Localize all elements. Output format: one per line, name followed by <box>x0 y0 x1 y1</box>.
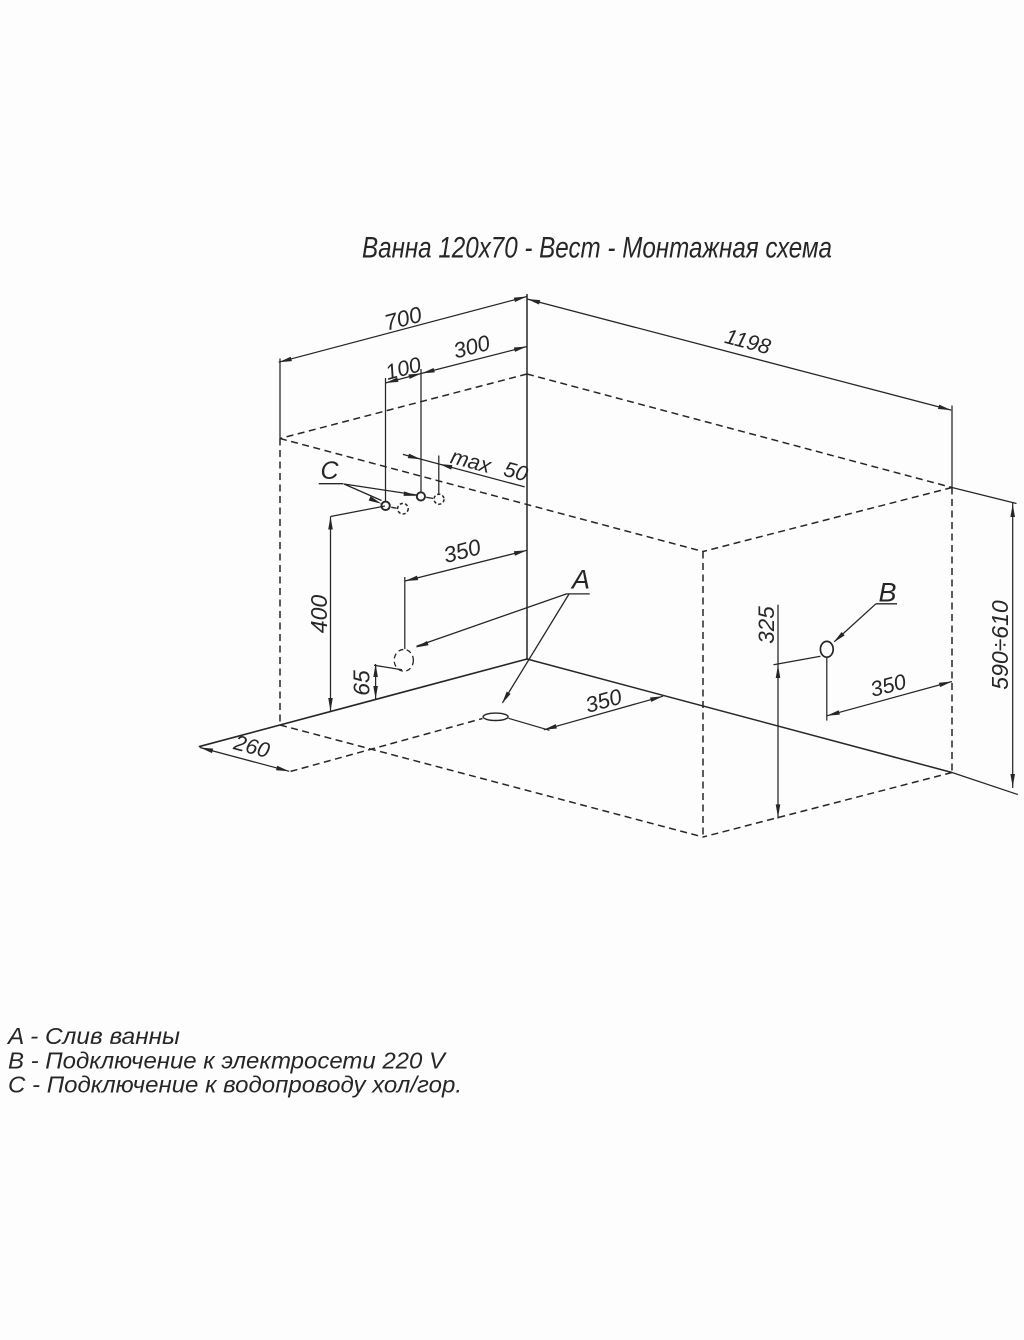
svg-text:325: 325 <box>754 606 779 644</box>
svg-text:400: 400 <box>306 595 332 634</box>
svg-text:65: 65 <box>349 670 375 696</box>
svg-text:Ванна 120x70 - Вест - Монтажна: Ванна 120x70 - Вест - Монтажная схема <box>362 232 832 265</box>
svg-text:B - Подключение к электросети: B - Подключение к электросети 220 V <box>8 1048 448 1074</box>
svg-text:C - Подключение к водопроводу: C - Подключение к водопроводу хол/гор. <box>8 1072 462 1098</box>
svg-text:A: A <box>570 565 590 595</box>
svg-text:590÷610: 590÷610 <box>987 600 1013 690</box>
svg-text:C: C <box>320 457 339 485</box>
svg-text:B: B <box>878 578 896 608</box>
svg-text:A - Слив ванны: A - Слив ванны <box>6 1023 180 1049</box>
